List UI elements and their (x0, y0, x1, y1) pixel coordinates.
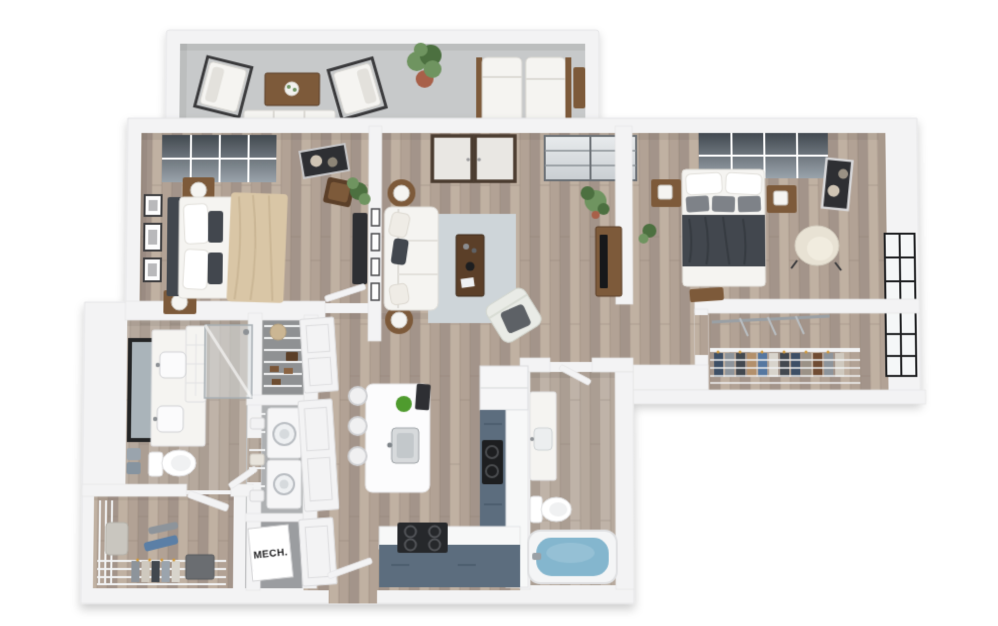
bed (166, 192, 287, 303)
dresser (186, 555, 214, 579)
wall-bathroom2-east (615, 372, 634, 589)
bedroom2-entry-strip-floor (633, 301, 695, 367)
tv (600, 235, 608, 289)
hanging-clothes (131, 558, 180, 582)
bed (682, 169, 766, 286)
wall-art (822, 158, 852, 210)
vanity (530, 392, 556, 480)
toilet (530, 496, 571, 522)
side-table (573, 67, 585, 108)
sink (160, 352, 186, 378)
bathtub (528, 531, 617, 584)
table-lamp (190, 182, 206, 198)
green-bowl (396, 396, 412, 412)
floor-plan-stage: MECH. (0, 0, 998, 626)
stored-box (286, 352, 298, 361)
sink (534, 428, 552, 450)
double-vanity (151, 326, 206, 446)
hall-closet-doors (297, 317, 340, 586)
floor-plan-svg: MECH. (0, 5, 998, 626)
entry-doorway (329, 588, 377, 603)
laundry-closet (249, 408, 302, 508)
range (397, 523, 447, 553)
foot-bench (689, 287, 724, 302)
toilet (149, 450, 196, 476)
outdoor-coffee-table (265, 73, 320, 105)
wall-linen-laundry (247, 395, 304, 405)
tub-faucet (532, 553, 541, 560)
table-lamp (391, 312, 407, 328)
floor-plan-3d-render: MECH. (0, 5, 998, 626)
gallery-wall-frames (144, 195, 162, 281)
hamper (105, 523, 128, 555)
tv-console (596, 227, 622, 296)
kitchen-island (365, 383, 430, 492)
island-appliance (415, 383, 431, 410)
wall-closet-right-south (633, 390, 926, 404)
bedroom1-window (162, 135, 277, 182)
sink (157, 406, 183, 432)
beige-throw (226, 192, 287, 303)
wall-bedroom1-south (125, 301, 325, 320)
mech-closet: MECH. (248, 525, 294, 581)
wall-bathroom1-south-a (82, 484, 187, 496)
bar-stools (348, 387, 366, 465)
framed-mirror (129, 340, 154, 440)
closet-right-doorway (695, 315, 708, 355)
french-doors (432, 136, 515, 181)
table-lamp (393, 185, 409, 201)
glass-shower (205, 325, 253, 398)
counter-run-south (379, 523, 520, 588)
wall-bedroom2-south (695, 299, 920, 313)
closet-side-window (886, 312, 917, 376)
stacked-washer-dryer (267, 408, 302, 508)
bedroom2-side-window (885, 234, 916, 305)
wall-strip-south (633, 365, 708, 390)
sofa (384, 207, 438, 310)
cube-lamp (658, 185, 672, 199)
wall-laundry-mech (246, 513, 303, 521)
hat-box (270, 324, 286, 340)
media-dresser (352, 213, 367, 284)
coffee-table (456, 235, 484, 297)
cube-lamp (774, 191, 788, 205)
wall-bathroom2-north-b (592, 358, 633, 372)
